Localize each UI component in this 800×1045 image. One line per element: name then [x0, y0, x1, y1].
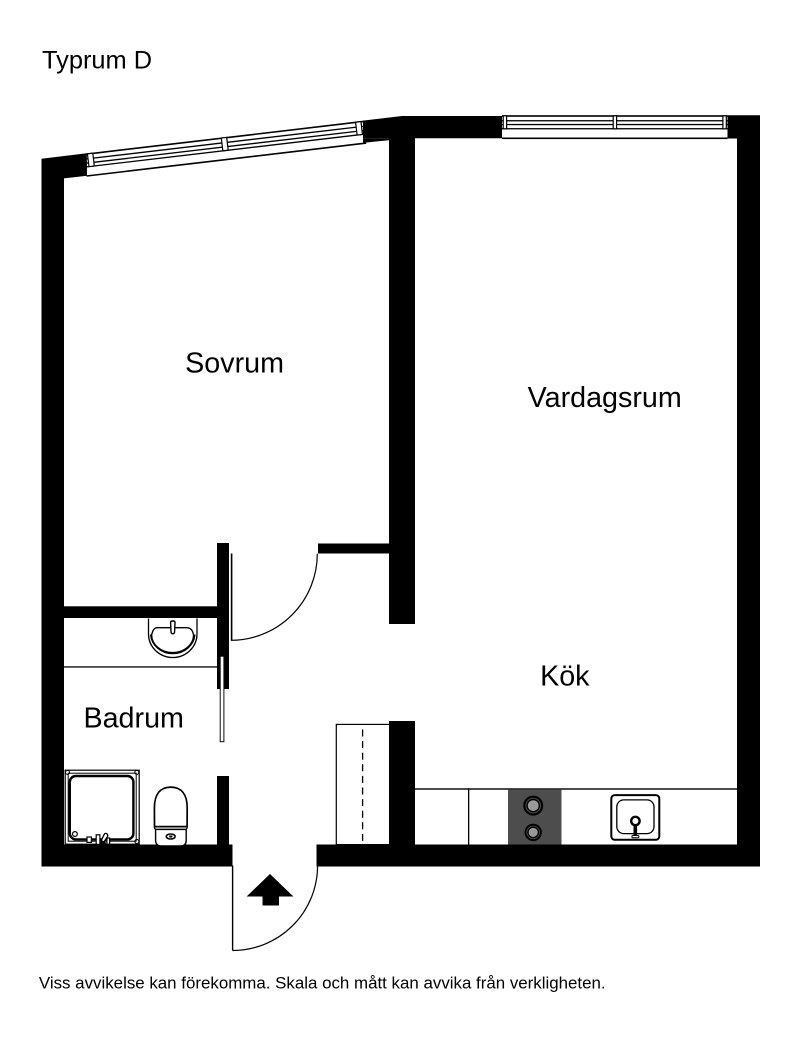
svg-text:Viss avvikelse kan förekomma.: Viss avvikelse kan förekomma. Skala och …: [39, 974, 606, 993]
svg-text:Sovrum: Sovrum: [185, 348, 284, 380]
svg-text:Typrum D: Typrum D: [42, 47, 152, 75]
svg-text:Kök: Kök: [540, 661, 590, 693]
svg-text:Badrum: Badrum: [83, 702, 183, 734]
svg-text:Vardagsrum: Vardagsrum: [528, 382, 682, 414]
